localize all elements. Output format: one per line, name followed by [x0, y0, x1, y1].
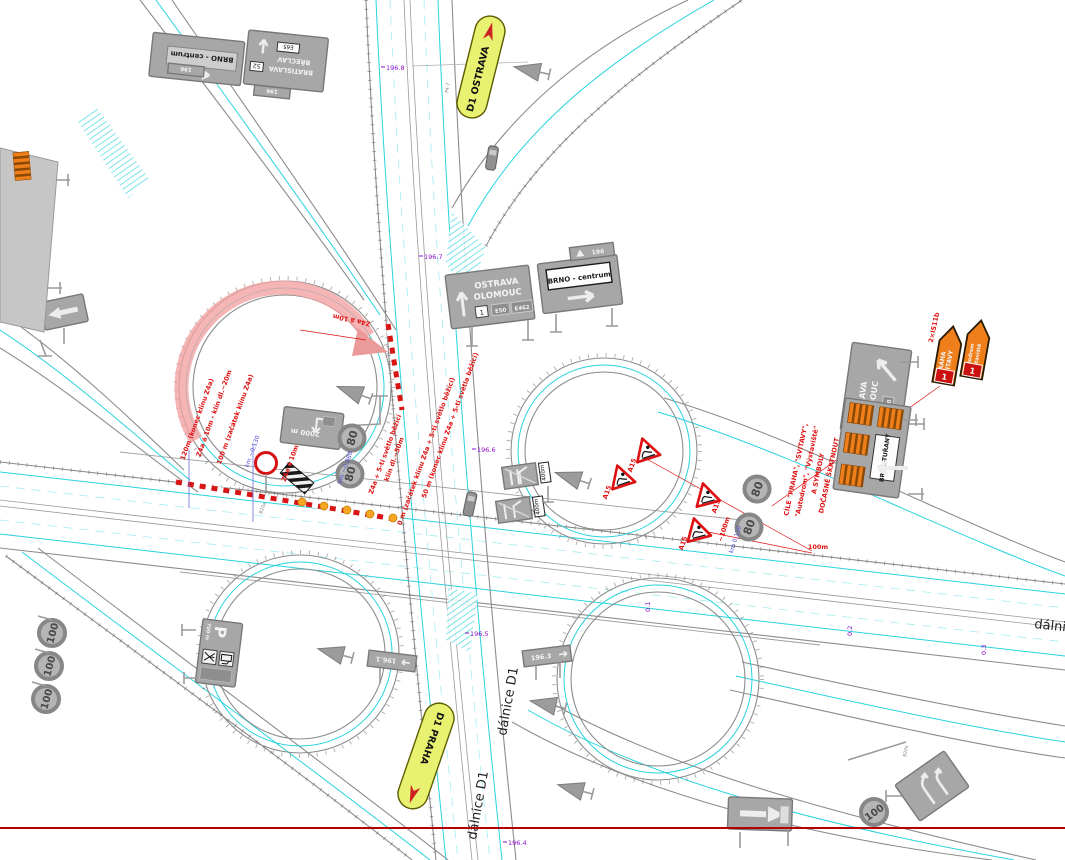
km-196-5: 196.5	[470, 630, 489, 638]
km-196-8: 196.8	[386, 64, 405, 72]
plan-drawing: BRNO - centrum BRATISLAVA 52 BŘECLAV E65…	[0, 0, 1065, 860]
route-number: 52	[252, 62, 261, 70]
km-0-1: 0.1	[644, 602, 652, 612]
gore-hatch	[78, 105, 150, 198]
sign-brno-centrum-mid: BRNO - centrum	[537, 254, 622, 313]
sign-covered-brno-turany: BRNO-TUŘANY	[833, 398, 911, 498]
pill-d1-praha: D1 PRAHA	[394, 699, 458, 813]
sign-2000m: 2000 m	[280, 406, 344, 449]
sign-lane-reduction-b: 400m	[496, 495, 546, 523]
note-0m-zacatek: 0 m (začátek klínu Z4a + 5-ti světlo běž…	[396, 376, 457, 526]
sign-lane-arrows-bottomright	[895, 751, 969, 821]
note-2xis: 2×IS11b	[927, 311, 941, 343]
a15-label: A15	[601, 484, 613, 500]
sign-rest-area: P 700 m	[195, 619, 243, 687]
road-label-dalnice-d1: dálnice D1	[495, 666, 522, 737]
works-vehicle	[463, 491, 478, 517]
code-p47: P4-7	[444, 82, 452, 93]
note-50m-konec: 50 m (konec klínu Z4a + 5-ti světla běží…	[420, 351, 480, 499]
prohibition-sign	[256, 453, 277, 474]
plate-exit-196-3: 196.3	[522, 645, 572, 667]
sign-lane-reduction-a: 400m	[502, 461, 552, 489]
leader-red-z4a	[300, 330, 366, 340]
km-0-3: 0.3	[980, 645, 988, 655]
sign-ostrava-olomouc-mid: OSTRAVA OLOMOUC 1 E50 E462	[445, 265, 535, 329]
plate-exit-196-1: 196.1	[367, 650, 417, 672]
sign-arrow-right-bottom	[727, 797, 792, 831]
road-label-dalnice-d1: dálnice D1	[465, 770, 492, 841]
note-100m: 100m	[808, 543, 829, 551]
sign-bratislava-breclav: BRATISLAVA 52 BŘECLAV E65	[243, 30, 328, 92]
pill-d1-ostrava: D1 OSTRAVA	[454, 13, 508, 121]
plate-label: 196	[180, 65, 192, 72]
note-100m-approx: ~100m	[716, 516, 732, 543]
km-196-4: 196.4	[508, 839, 527, 847]
code-b20a: B20a	[902, 745, 910, 758]
works-vehicle	[485, 145, 499, 170]
road-label-dalnice: dálnice	[1034, 617, 1065, 637]
km-196-6: 196.6	[477, 446, 496, 454]
km-196-7: 196.7	[424, 253, 443, 261]
sign-orange-arrow-autodrom: Autodrom Výstaviště 1	[960, 319, 992, 380]
note-km-0130b: km 0,130	[728, 525, 743, 554]
loop-lower-right	[554, 575, 762, 783]
small-code-labels: P4-7 B20a B20a	[258, 82, 910, 760]
sign-brno-centrum-topleft: BRNO - centrum	[149, 32, 245, 85]
traffic-plan-canvas: BRNO - centrum BRATISLAVA 52 BŘECLAV E65…	[0, 0, 1065, 860]
code-b20a: B20a	[258, 502, 268, 515]
gore-hatch	[446, 588, 478, 652]
plate-label: 196	[266, 87, 278, 94]
km-0-2: 0.2	[846, 626, 854, 636]
e-route: E65	[282, 43, 294, 50]
a15-label: A15	[626, 457, 638, 473]
loop-upper-right	[508, 355, 700, 547]
